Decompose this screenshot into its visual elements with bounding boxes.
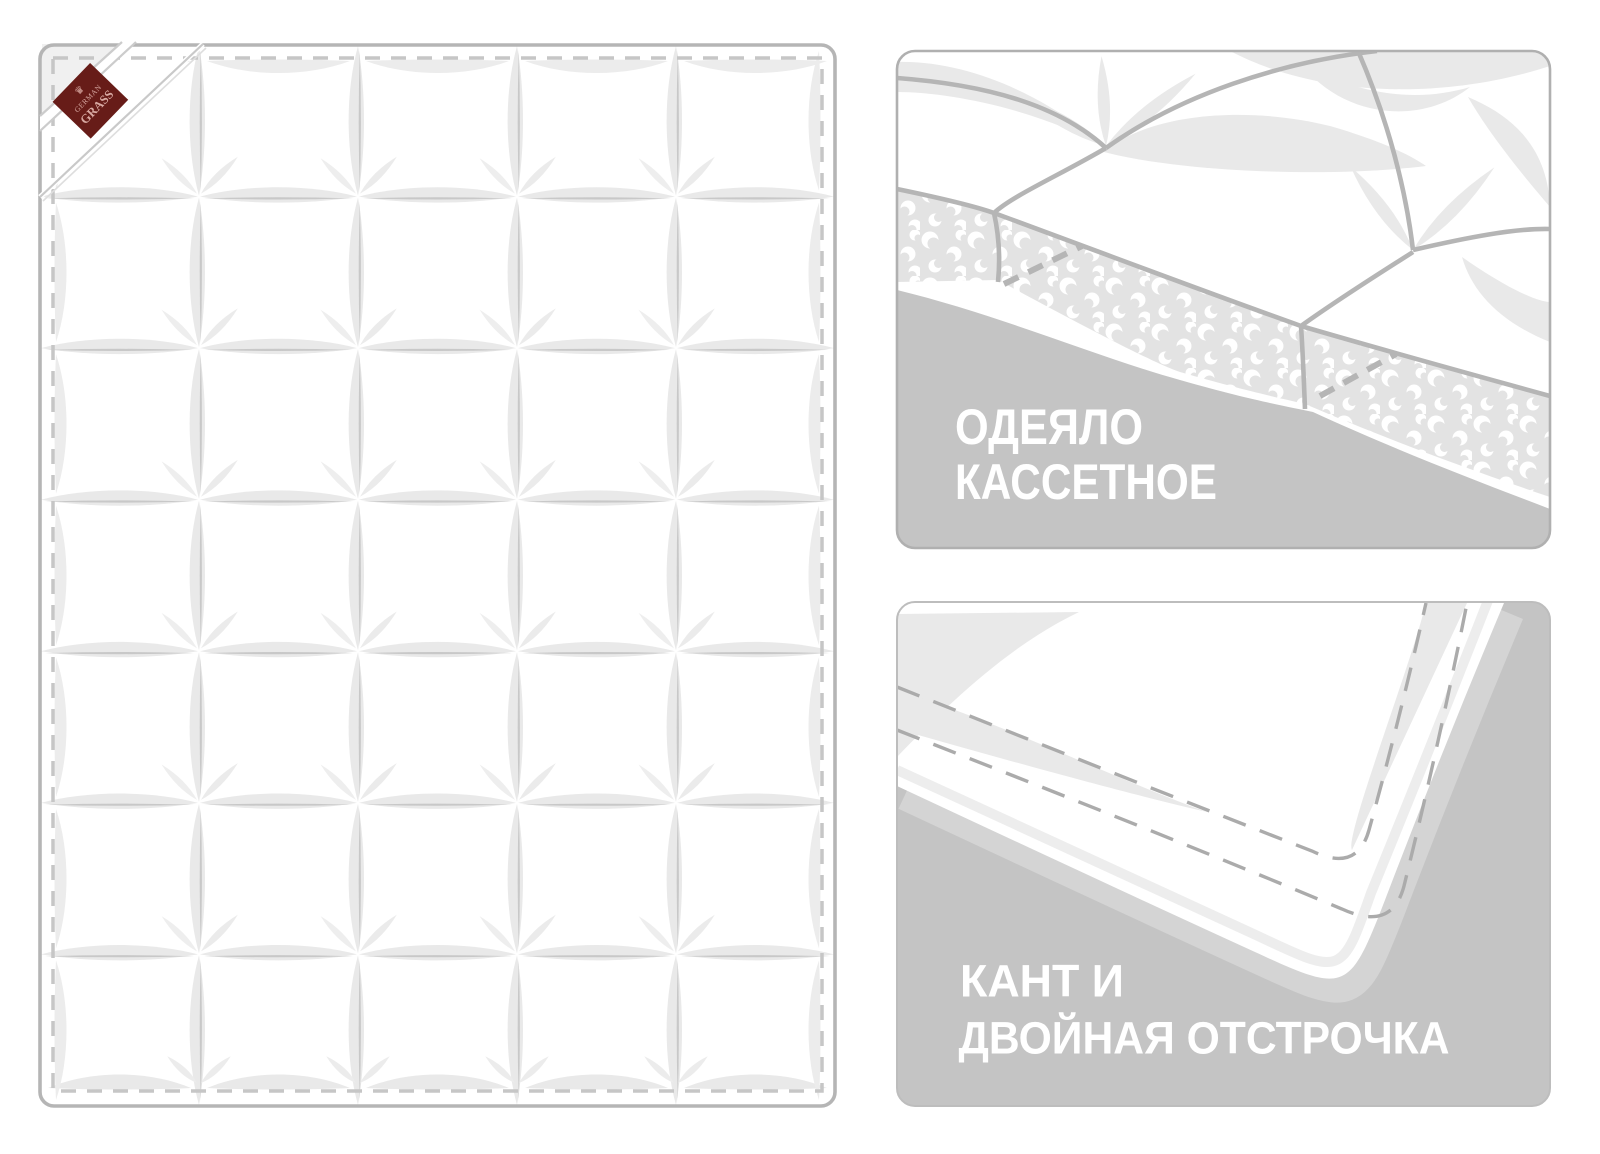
svg-text:КАНТ И: КАНТ И: [960, 956, 1124, 1007]
svg-text:КАССЕТНОЕ: КАССЕТНОЕ: [955, 454, 1217, 510]
svg-text:ОДЕЯЛО: ОДЕЯЛО: [955, 399, 1143, 455]
svg-text:ДВОЙНАЯ ОТСТРОЧКА: ДВОЙНАЯ ОТСТРОЧКА: [959, 1013, 1450, 1064]
